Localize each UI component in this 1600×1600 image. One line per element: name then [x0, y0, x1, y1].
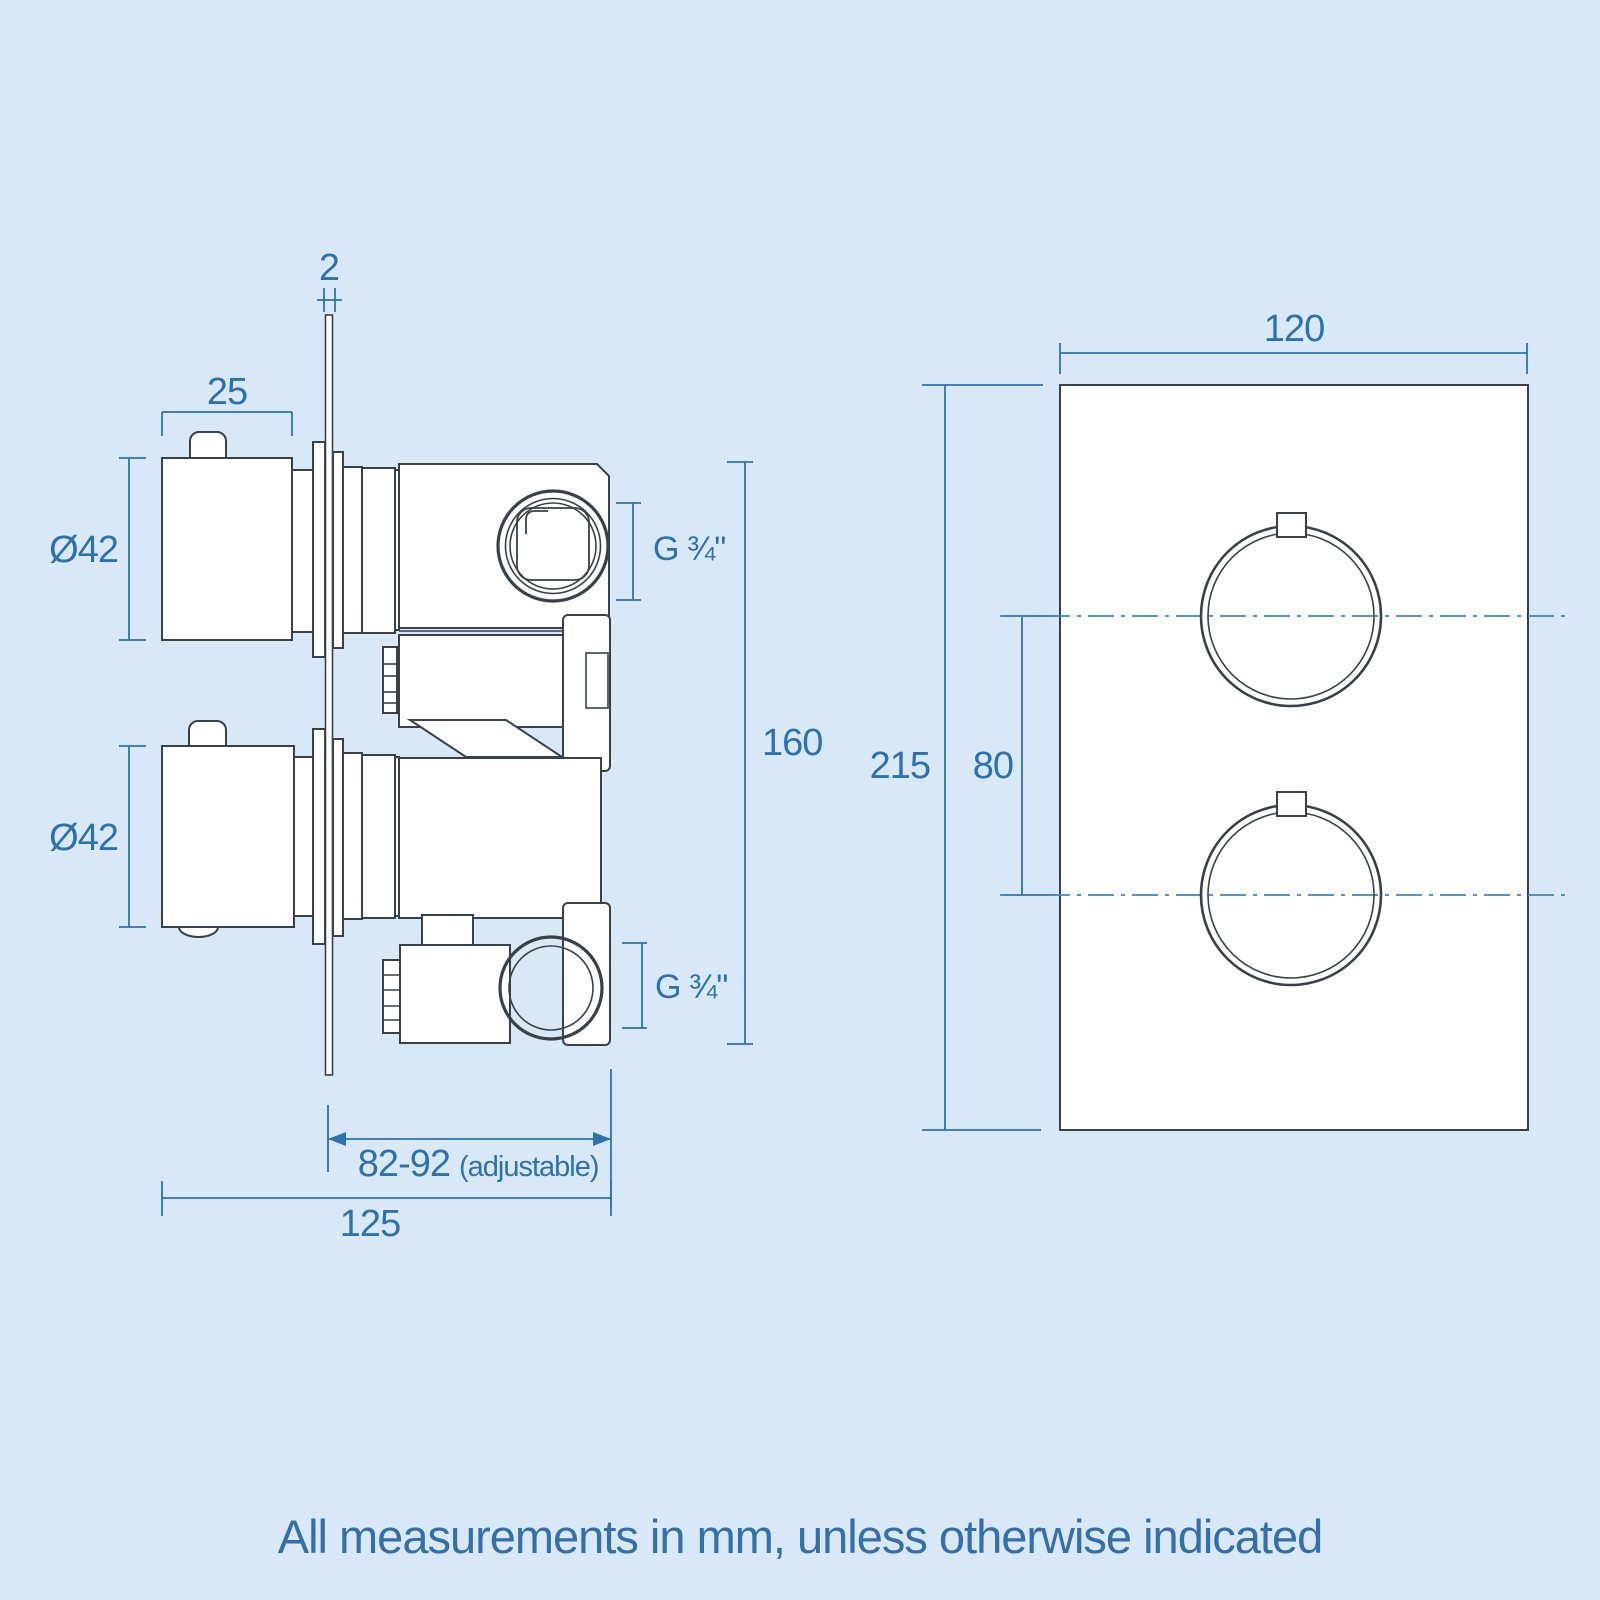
arrow-left-icon — [328, 1132, 346, 1146]
upper-handle-assembly — [162, 432, 399, 657]
upper-knob — [162, 458, 292, 640]
lower-flange-front — [313, 729, 325, 944]
dim-plate-width: 120 — [1264, 308, 1324, 350]
outlet-threaded-inlet — [383, 960, 400, 1033]
upper-body-block — [399, 464, 609, 628]
dim-overall-depth: 125 — [340, 1203, 400, 1245]
lower-knob-bottom-button — [179, 927, 218, 937]
lower-spindle-collar — [343, 753, 362, 919]
dim-handle-centres: 80 — [973, 745, 1013, 787]
lower-flange-back — [333, 739, 343, 936]
dim-recess-depth-note: (adjustable) — [459, 1151, 599, 1183]
outlet-block — [400, 945, 510, 1043]
dim-lower-knob-diameter: Ø42 — [49, 817, 118, 859]
mid-block — [399, 635, 563, 727]
upper-knob-neck — [292, 470, 313, 632]
lower-knob — [162, 746, 294, 927]
upper-spindle-collar — [343, 467, 362, 633]
lower-handle-notch — [1277, 792, 1306, 816]
upper-flange-front — [313, 442, 325, 657]
lower-knob-neck — [294, 757, 313, 916]
dim-plate-height: 215 — [870, 745, 930, 787]
mid-section — [383, 615, 610, 771]
dim-body-height: 160 — [762, 722, 822, 764]
lower-body-block — [399, 758, 601, 918]
lower-handle-assembly — [162, 721, 399, 944]
upper-tab-window — [586, 653, 608, 708]
footer-note: All measurements in mm, unless otherwise… — [278, 1510, 1323, 1563]
dim-plate-thickness: 2 — [319, 247, 339, 289]
dim-knob-depth: 25 — [207, 371, 247, 413]
technical-drawing: 2 25 Ø42 Ø42 G ¾" G ¾" — [0, 0, 1600, 1600]
upper-valve-body — [399, 464, 609, 628]
dim-lower-port-thread: G ¾" — [655, 968, 727, 1006]
dim-upper-port-thread: G ¾" — [653, 530, 725, 568]
upper-handle-notch — [1277, 513, 1306, 537]
wall-plate-side — [326, 315, 333, 1075]
side-view: 2 25 Ø42 Ø42 G ¾" G ¾" — [49, 247, 822, 1245]
face-plate — [1060, 385, 1528, 1130]
upper-cartridge-step — [362, 468, 395, 633]
lower-cartridge-step — [362, 755, 395, 918]
dim-recess-depth-range: 82-92 — [358, 1143, 450, 1185]
front-view: 120 215 80 — [870, 308, 1572, 1130]
dim-upper-knob-diameter: Ø42 — [49, 529, 118, 571]
upper-flange-back — [333, 452, 343, 648]
lower-valve-body — [383, 758, 610, 1045]
arrow-right-icon — [593, 1132, 611, 1146]
